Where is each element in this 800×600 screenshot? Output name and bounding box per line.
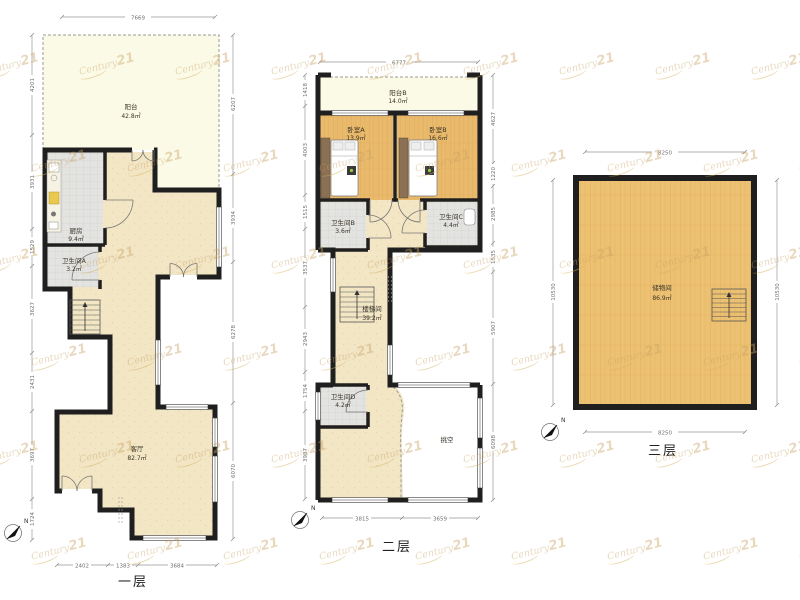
floor2-bedB-icon bbox=[399, 138, 437, 198]
room-label: 卧室A bbox=[347, 125, 365, 134]
svg-text:6278: 6278 bbox=[231, 325, 237, 339]
room-area: 3.2㎡ bbox=[66, 265, 82, 273]
room-label: 卫生间A bbox=[62, 256, 87, 265]
svg-text:10530: 10530 bbox=[775, 283, 781, 301]
svg-text:1724: 1724 bbox=[30, 512, 36, 526]
room-area: 13.9㎡ bbox=[346, 134, 365, 142]
floor1-plan: 阳台 42.8㎡ 厨房 9.4㎡ 卫生间A 3.2㎡ 客厅 82.7㎡ 7669… bbox=[5, 13, 238, 590]
svg-text:1418: 1418 bbox=[303, 83, 309, 97]
room-area: 86.9㎡ bbox=[652, 294, 671, 302]
room-label: 储物间 bbox=[652, 283, 672, 292]
floor2-toilet-icon bbox=[464, 209, 475, 225]
room-label: 卫生间C bbox=[439, 212, 464, 221]
svg-text:10530: 10530 bbox=[551, 283, 557, 301]
svg-text:7669: 7669 bbox=[131, 16, 145, 22]
svg-text:8250: 8250 bbox=[658, 431, 672, 437]
room-area: 3.6㎡ bbox=[335, 227, 351, 235]
svg-text:6070: 6070 bbox=[231, 464, 237, 478]
svg-text:3815: 3815 bbox=[355, 517, 369, 523]
svg-text:1220: 1220 bbox=[491, 167, 497, 181]
room-area: 39.2㎡ bbox=[362, 314, 381, 322]
room-label: 卫生间D bbox=[331, 392, 356, 401]
svg-text:5907: 5907 bbox=[491, 321, 497, 335]
svg-text:2943: 2943 bbox=[303, 332, 309, 346]
svg-text:1529: 1529 bbox=[30, 240, 36, 254]
svg-text:2985: 2985 bbox=[491, 207, 497, 221]
north-label: N bbox=[561, 417, 566, 424]
svg-text:3987: 3987 bbox=[303, 448, 309, 462]
svg-text:3934: 3934 bbox=[231, 211, 237, 225]
floor1-kitchen-counter bbox=[47, 160, 61, 232]
svg-text:4201: 4201 bbox=[30, 78, 36, 92]
svg-text:1515: 1515 bbox=[303, 205, 309, 219]
room-label: 卧室B bbox=[429, 125, 446, 134]
svg-text:3697: 3697 bbox=[30, 448, 36, 462]
floor1-compass: N bbox=[5, 518, 29, 542]
north-label: N bbox=[311, 505, 316, 512]
floor1-title: 一层 bbox=[118, 575, 148, 590]
room-label: 阳台 bbox=[125, 102, 138, 111]
svg-text:3659: 3659 bbox=[433, 517, 447, 523]
svg-text:3684: 3684 bbox=[170, 564, 184, 570]
svg-text:6098: 6098 bbox=[491, 435, 497, 449]
floor3-compass: N bbox=[542, 417, 566, 441]
svg-text:3931: 3931 bbox=[30, 175, 36, 189]
room-area: 9.4㎡ bbox=[68, 235, 84, 243]
room-label: 厨房 bbox=[70, 226, 83, 235]
floorplan-image: 阳台 42.8㎡ 厨房 9.4㎡ 卫生间A 3.2㎡ 客厅 82.7㎡ 7669… bbox=[0, 0, 800, 600]
svg-text:6207: 6207 bbox=[231, 97, 237, 111]
svg-text:6777: 6777 bbox=[392, 61, 406, 67]
floor3-plan: 储物间 86.9㎡ 8250 8250 10530 10530 三层 N bbox=[542, 148, 782, 459]
svg-text:2431: 2431 bbox=[30, 375, 36, 389]
floor2-void-fill bbox=[394, 385, 478, 498]
room-area: 42.8㎡ bbox=[121, 112, 140, 120]
svg-text:8250: 8250 bbox=[658, 151, 672, 157]
room-label: 卫生间B bbox=[331, 218, 355, 227]
room-area: 14.0㎡ bbox=[388, 97, 407, 105]
svg-text:2402: 2402 bbox=[75, 564, 89, 570]
room-label: 挑空 bbox=[441, 435, 455, 444]
svg-text:4627: 4627 bbox=[491, 112, 497, 126]
floor3-storage-fill bbox=[576, 178, 754, 407]
svg-text:4003: 4003 bbox=[303, 143, 309, 157]
floor2-compass: N bbox=[292, 505, 316, 529]
north-label: N bbox=[24, 518, 29, 525]
room-area: 4.2㎡ bbox=[335, 401, 351, 409]
svg-text:1754: 1754 bbox=[303, 384, 309, 398]
floor1-balcony-fill-lower bbox=[155, 150, 219, 190]
svg-text:3627: 3627 bbox=[30, 302, 36, 316]
floor2-title: 二层 bbox=[382, 540, 412, 555]
room-label: 阳台B bbox=[389, 88, 406, 97]
floor2-plan: 阳台B 14.0㎡ 卧室A 13.9㎡ 卧室B 16.6㎡ 卫生间B 3.6㎡ … bbox=[292, 58, 498, 555]
svg-text:3537: 3537 bbox=[303, 261, 309, 275]
room-area: 4.4㎡ bbox=[443, 221, 459, 229]
floor3-title: 三层 bbox=[648, 444, 678, 459]
svg-text:1383: 1383 bbox=[116, 564, 130, 570]
room-area: 82.7㎡ bbox=[127, 454, 146, 462]
svg-text:1535: 1535 bbox=[491, 250, 497, 264]
room-label: 楼梯间 bbox=[362, 304, 382, 313]
floorplan-svg: 阳台 42.8㎡ 厨房 9.4㎡ 卫生间A 3.2㎡ 客厅 82.7㎡ 7669… bbox=[0, 0, 800, 600]
room-area: 16.6㎡ bbox=[428, 134, 447, 142]
room-label: 客厅 bbox=[131, 444, 145, 453]
floor1-balcony-fill bbox=[43, 35, 219, 150]
floor2-bedA-icon bbox=[321, 138, 358, 198]
